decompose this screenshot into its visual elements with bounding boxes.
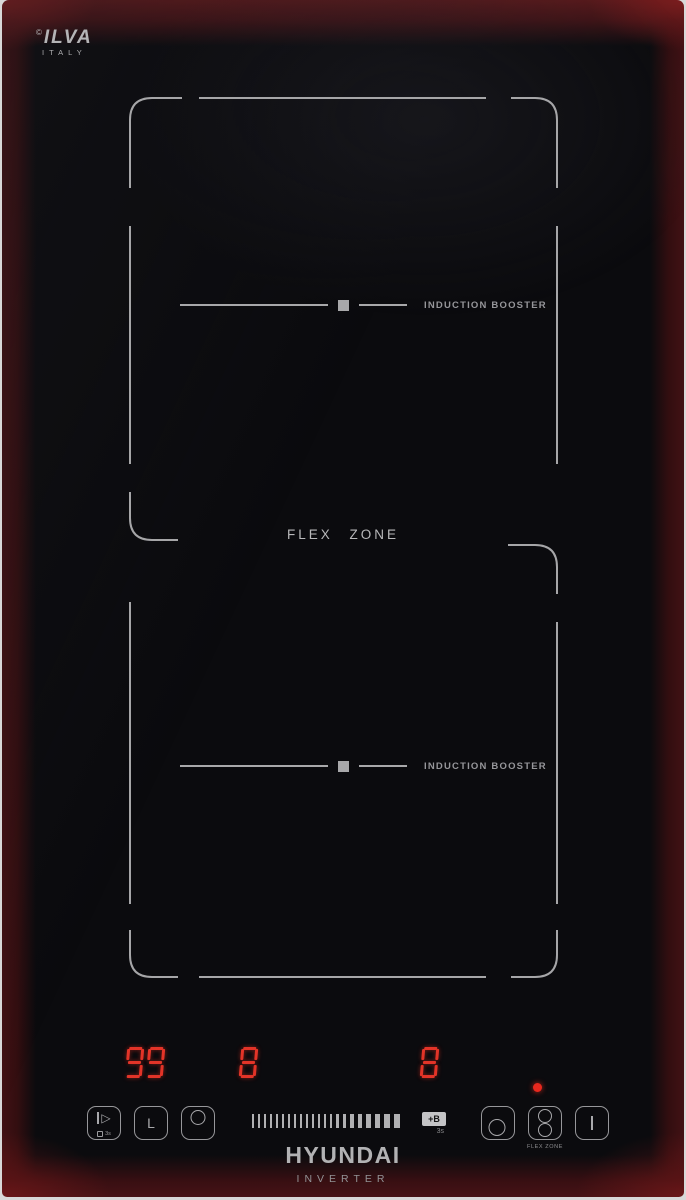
slider-tick bbox=[394, 1114, 400, 1128]
slider-tick bbox=[252, 1114, 254, 1128]
power-key[interactable] bbox=[575, 1106, 609, 1140]
upper-zone-select-key[interactable] bbox=[181, 1106, 215, 1140]
slider-tick bbox=[343, 1114, 346, 1128]
photo-background: © ILVA ITALY INDUCTION BOOSTER INDUCTION… bbox=[0, 0, 686, 1200]
upper-zone-power-display bbox=[240, 1047, 257, 1078]
slider-tick bbox=[375, 1114, 380, 1128]
slider-tick bbox=[318, 1114, 320, 1128]
slider-tick bbox=[282, 1114, 284, 1128]
slider-tick bbox=[306, 1114, 308, 1128]
slider-tick bbox=[336, 1114, 339, 1128]
power-slider[interactable] bbox=[252, 1113, 400, 1128]
slider-tick bbox=[258, 1114, 260, 1128]
flex-zone-indicator-led bbox=[533, 1083, 542, 1092]
booster-label: INDUCTION BOOSTER bbox=[424, 300, 547, 311]
lock-hold-hint: 3s bbox=[105, 1131, 111, 1137]
slider-tick bbox=[300, 1114, 302, 1128]
slider-tick bbox=[330, 1114, 332, 1128]
slider-tick bbox=[366, 1114, 371, 1128]
booster-label: INDUCTION BOOSTER bbox=[424, 761, 547, 772]
pause-lock-icon: ▷ bbox=[88, 1112, 120, 1124]
zone-outlines bbox=[2, 0, 684, 1197]
upper-zone-outline bbox=[130, 98, 557, 540]
booster-short-line bbox=[359, 765, 407, 767]
lower-zone-select-icon bbox=[488, 1119, 505, 1136]
slider-tick bbox=[384, 1114, 390, 1128]
flex-zone-icon bbox=[538, 1123, 552, 1137]
booster-hold-hint: 3s bbox=[422, 1128, 446, 1135]
upper-zone-select-icon bbox=[191, 1110, 206, 1125]
maker-logo: HYUNDAI bbox=[2, 1142, 684, 1169]
slider-tick bbox=[288, 1114, 290, 1128]
flex-zone-label: FLEX ZONE bbox=[2, 527, 684, 542]
booster-long-line bbox=[180, 304, 328, 306]
slider-tick bbox=[270, 1114, 272, 1128]
seven-segment-digit bbox=[125, 1047, 145, 1078]
booster-square-icon bbox=[338, 761, 349, 772]
timer-display bbox=[126, 1047, 164, 1078]
slider-tick bbox=[358, 1114, 362, 1128]
booster-short-line bbox=[359, 304, 407, 306]
timer-clock-icon: L bbox=[147, 1115, 155, 1131]
seven-segment-digit bbox=[420, 1047, 440, 1078]
flex-zone-key[interactable]: FLEX ZONE bbox=[528, 1106, 562, 1140]
booster-square-icon bbox=[338, 300, 349, 311]
slider-tick bbox=[276, 1114, 278, 1128]
slider-tick bbox=[294, 1114, 296, 1128]
power-on-off-icon bbox=[591, 1116, 593, 1130]
slider-tick bbox=[264, 1114, 266, 1128]
lower-zone-booster-mark: INDUCTION BOOSTER bbox=[180, 760, 547, 772]
pause-lock-key[interactable]: ▷ 3s bbox=[87, 1106, 121, 1140]
upper-zone-booster-mark: INDUCTION BOOSTER bbox=[180, 299, 547, 311]
flex-zone-icon bbox=[538, 1109, 552, 1123]
cooktop-glass-surface: © ILVA ITALY INDUCTION BOOSTER INDUCTION… bbox=[2, 0, 684, 1197]
slider-tick bbox=[324, 1114, 326, 1128]
seven-segment-digit bbox=[239, 1047, 259, 1078]
slider-tick bbox=[350, 1114, 354, 1128]
timer-key[interactable]: L bbox=[134, 1106, 168, 1140]
booster-key-label[interactable]: +B bbox=[422, 1112, 446, 1126]
seven-segment-digit bbox=[146, 1047, 166, 1078]
mini-lock-icon bbox=[97, 1131, 103, 1137]
lower-zone-select-key[interactable] bbox=[481, 1106, 515, 1140]
lower-zone-power-display bbox=[421, 1047, 438, 1078]
maker-sub-label: INVERTER bbox=[2, 1173, 684, 1185]
booster-long-line bbox=[180, 765, 328, 767]
slider-tick bbox=[312, 1114, 314, 1128]
booster-key[interactable]: +B 3s bbox=[422, 1112, 446, 1135]
